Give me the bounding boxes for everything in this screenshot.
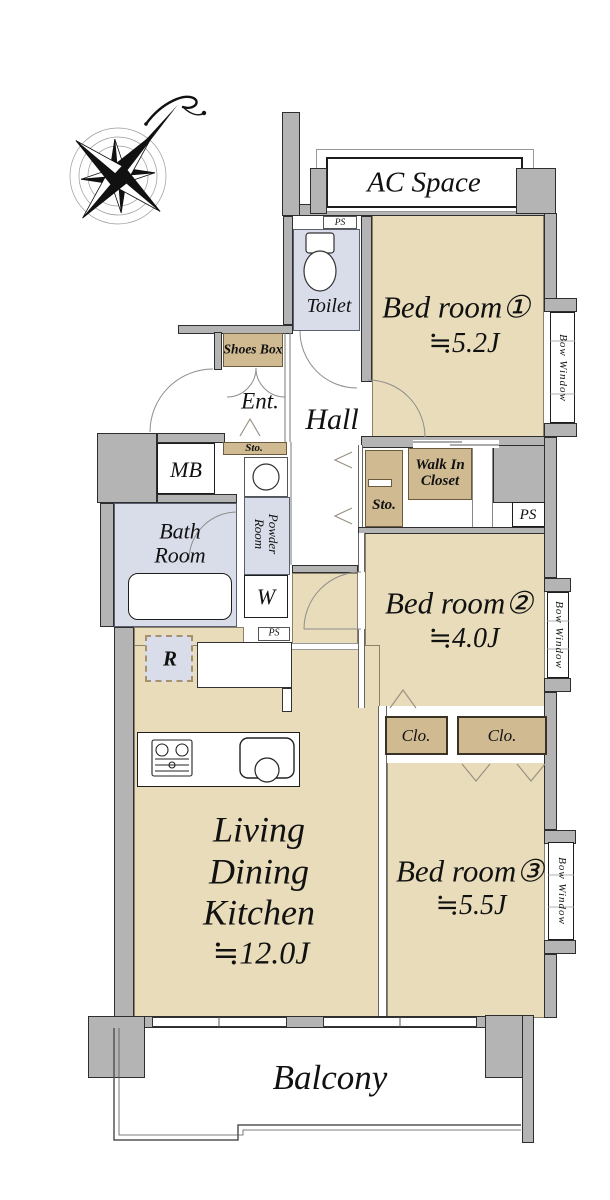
ps-small-label: PS [268,629,279,640]
floor-plan: AC Space PS Toilet Bed room① ≒5.2J Bow W… [0,0,610,1200]
mb-label: MB [170,458,202,482]
entrance-door-arc [150,369,213,432]
closet1-fold-door-mark [390,690,416,708]
bedroom2-name-label: Bed room② [385,586,533,619]
ldk-line3-label: Kitchen [203,894,315,933]
ldk-size-label: ≒12.0J [212,936,309,971]
washer-label: W [257,585,275,609]
bedroom3-size-label: ≒5.5J [436,891,507,921]
kitchen-sink-icon [240,738,294,782]
bath-line2: Room [154,543,205,567]
storage-fold-door-top [335,452,352,468]
ldk-line2-label: Dining [209,853,309,892]
ldk-door-arc [304,572,361,629]
ps-top-label: PS [335,218,346,228]
bow-window2-label: Bow Window [552,601,564,669]
balcony-label: Balcony [273,1059,388,1097]
powder-line2: Room [252,514,266,554]
bedroom1-door-arc [368,380,425,437]
storage-fold-door-bottom [335,508,352,524]
toilet-door-arc [300,331,357,388]
toilet-label: Toilet [307,296,352,318]
walk-in-closet-line2: Closet [415,473,464,489]
ac-space-label: AC Space [367,167,481,198]
ldk-line1-label: Living [213,811,305,850]
refrigerator-label: R [163,648,177,671]
bow-window3-label: Bow Window [555,857,567,925]
sto-big-label: Sto. [372,497,396,513]
walk-in-closet-label: Walk In Closet [415,457,464,489]
bath-line1: Bath [154,519,205,543]
powder-room-label: Powder Room [252,514,280,554]
bow-window1-label: Bow Window [556,334,568,402]
ent-label: Ent. [241,390,279,415]
shoes-box-label: Shoes Box [224,343,283,358]
sto-strip-label: Sto. [245,443,262,455]
toilet-fixture-icon [304,233,336,291]
bath-room-label: Bath Room [154,519,205,567]
wash-basin-icon [253,464,279,490]
entrance-step-mark [240,419,260,436]
hall-label: Hall [305,404,358,436]
bedroom1-name-label: Bed room① [382,290,530,323]
ps-right-label: PS [520,507,537,523]
bedroom3-name-label: Bed room③ [396,854,544,887]
bedroom1-size-label: ≒5.2J [429,329,500,359]
powder-line1: Powder [266,514,280,554]
gas-stove-icon [152,740,192,776]
walk-in-closet-line1: Walk In [415,457,464,473]
closet2-fold-door-mark-b [517,764,545,781]
closet2-label: Clo. [488,727,517,745]
closet1-label: Clo. [402,727,431,745]
closet2-fold-door-mark-a [462,764,490,781]
bedroom2-size-label: ≒4.0J [429,624,500,654]
